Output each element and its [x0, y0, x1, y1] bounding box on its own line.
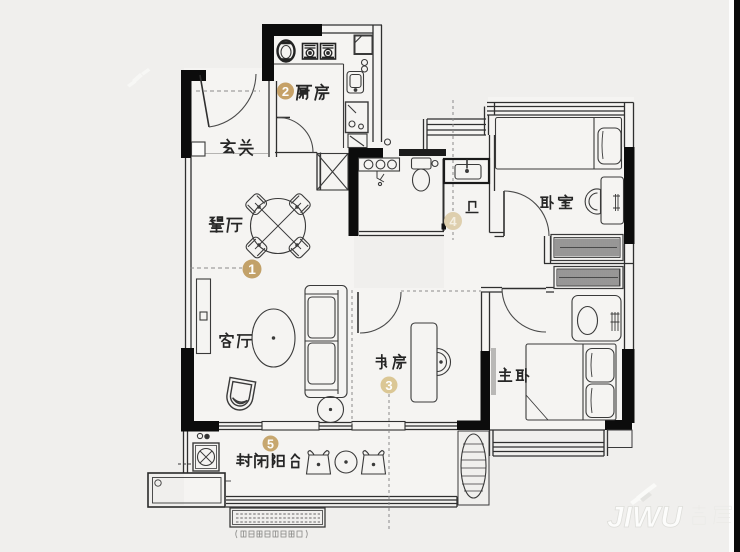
svg-text:2: 2 [282, 84, 289, 99]
svg-text:1: 1 [248, 261, 256, 277]
svg-text:JIWU: JIWU [607, 501, 683, 534]
svg-text:5: 5 [267, 438, 274, 452]
svg-text:4: 4 [449, 214, 457, 229]
svg-text:3: 3 [385, 378, 392, 393]
